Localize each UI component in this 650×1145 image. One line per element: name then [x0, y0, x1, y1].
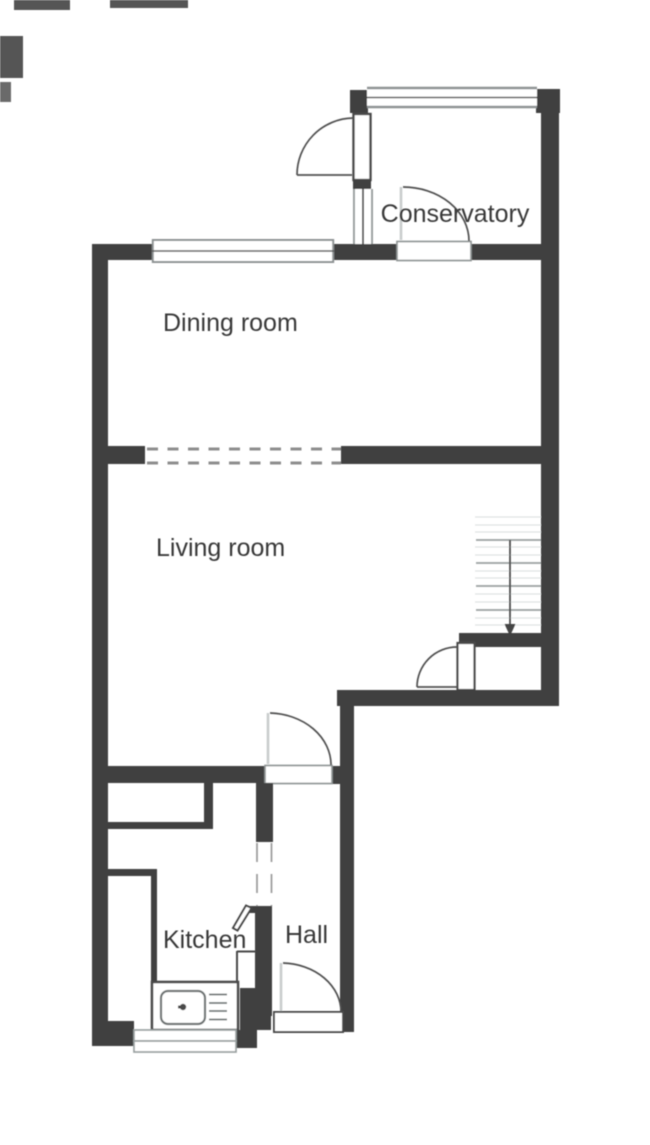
- svg-text:Kitchen: Kitchen: [163, 926, 246, 954]
- svg-text:Conservatory: Conservatory: [381, 200, 530, 228]
- svg-text:Living room: Living room: [156, 534, 285, 562]
- svg-text:Dining room: Dining room: [163, 309, 298, 337]
- svg-text:Hall: Hall: [285, 921, 328, 949]
